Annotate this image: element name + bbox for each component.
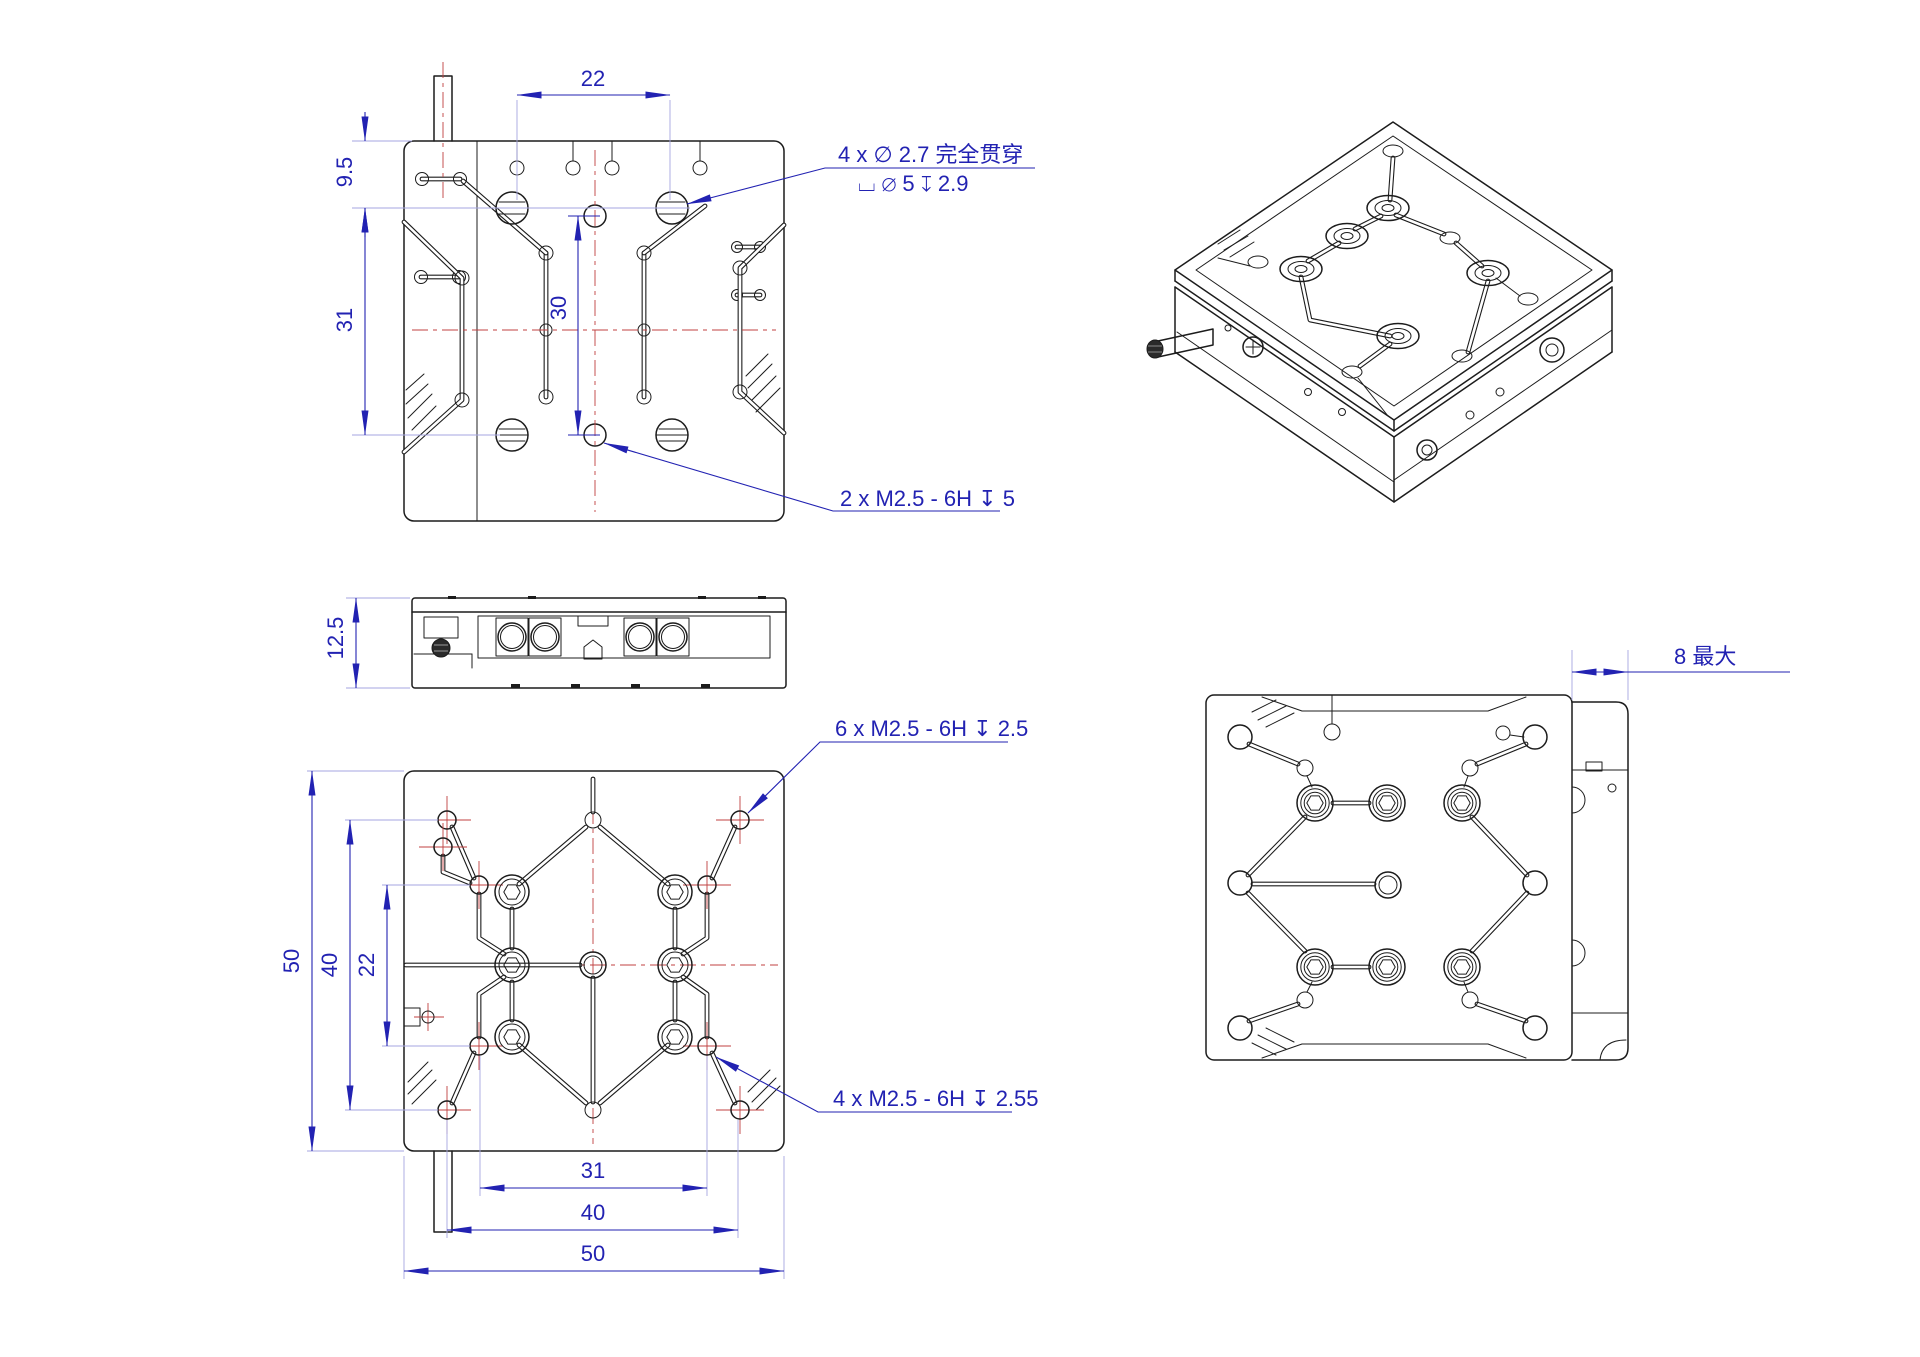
top-view-flexures <box>404 173 784 453</box>
iso-top-flexures <box>1218 145 1538 416</box>
hatch-marks-left <box>406 374 436 430</box>
dim-22-horizontal: 22 <box>517 66 670 95</box>
tapped-hole-m25 <box>716 1086 764 1134</box>
dim-50-bottom: 50 <box>404 1241 784 1271</box>
cable-connector <box>1147 340 1163 358</box>
dim-31-bottom: 31 <box>480 1158 707 1188</box>
rear-view-flexures <box>1248 695 1527 1021</box>
dim-12-5-vertical: 12.5 <box>323 598 410 688</box>
tapped-hole-m25 <box>419 823 467 871</box>
leader-counterbore: 4 x ∅ 2.7 完全贯穿 ⌴ ∅ 5 ↧ 2.9 <box>687 142 1035 204</box>
socket-screw <box>658 1020 692 1054</box>
note-counterbore-line2: ⌴ ∅ 5 ↧ 2.9 <box>858 171 968 196</box>
rear-view-flange <box>1572 702 1628 1060</box>
side-counterbore <box>1540 338 1564 362</box>
piezo-actuators <box>496 618 689 656</box>
dim-40-left: 40 <box>317 820 350 1110</box>
engineering-drawing: 22 9.5 31 30 4 x ∅ 2.7 完全贯穿 ⌴ ∅ 5 ↧ 2.9 … <box>0 0 1920 1357</box>
dim-8-max: 8 最大 <box>1572 644 1790 700</box>
dim-label-22-left: 22 <box>354 953 379 977</box>
top-view-extension-lines <box>352 100 690 435</box>
dim-label-31-bottom: 31 <box>581 1158 605 1183</box>
socket-screw <box>1369 785 1405 821</box>
dim-label-12-5: 12.5 <box>323 617 348 660</box>
leader-thread-6x: 6 x M2.5 - 6H ↧ 2.5 <box>748 716 1028 813</box>
socket-screw <box>495 875 529 909</box>
dim-40-bottom: 40 <box>447 1200 738 1230</box>
dim-label-50-left: 50 <box>279 949 304 973</box>
dim-label-31: 31 <box>332 308 357 332</box>
dim-label-40-bottom: 40 <box>581 1200 605 1225</box>
socket-screw <box>495 1020 529 1054</box>
connector-block <box>424 617 458 638</box>
socket-screw <box>1297 785 1333 821</box>
note-thread-2x: 2 x M2.5 - 6H ↧ 5 <box>840 486 1015 511</box>
socket-screw <box>658 875 692 909</box>
bottom-view: 50 40 22 31 40 50 6 x M2.5 - 6H ↧ 2.5 4 <box>279 716 1039 1279</box>
note-counterbore-line1: 4 x ∅ 2.7 完全贯穿 <box>838 142 1023 167</box>
note-thread-4x: 4 x M2.5 - 6H ↧ 2.55 <box>833 1086 1039 1111</box>
socket-screw <box>1297 949 1333 985</box>
leader-thread-2x: 2 x M2.5 - 6H ↧ 5 <box>604 443 1015 511</box>
top-view-centerlines <box>412 62 776 512</box>
socket-screw <box>1369 949 1405 985</box>
side-view: 12.5 <box>323 596 786 688</box>
leader-thread-4x: 4 x M2.5 - 6H ↧ 2.55 <box>716 1057 1039 1112</box>
isometric-view <box>1147 122 1612 502</box>
dim-31-vertical: 31 <box>332 208 365 435</box>
top-view: 22 9.5 31 30 4 x ∅ 2.7 完全贯穿 ⌴ ∅ 5 ↧ 2.9 … <box>332 62 1035 521</box>
dim-label-9-5: 9.5 <box>332 157 357 188</box>
dim-30-vertical: 30 <box>546 216 600 435</box>
cable-stub-bottom <box>434 1151 452 1232</box>
dim-label-8-max: 8 最大 <box>1674 644 1736 669</box>
hatch-marks-bottom-right <box>748 1070 780 1110</box>
counterbore-hole <box>496 419 528 451</box>
hatch-marks-bottom-left <box>408 1062 436 1104</box>
dim-22-left: 22 <box>354 885 387 1046</box>
dim-label-50-bottom: 50 <box>581 1241 605 1266</box>
tapped-hole-m25 <box>716 796 764 844</box>
bottom-view-flexures <box>404 779 780 1110</box>
dim-label-30: 30 <box>546 296 571 320</box>
rear-view: 8 最大 <box>1206 644 1790 1060</box>
socket-screw <box>1444 949 1480 985</box>
dim-label-40-left: 40 <box>317 953 342 977</box>
cable-gland <box>432 639 450 657</box>
bottom-view-extension-lines <box>307 771 784 1279</box>
socket-screw <box>1444 785 1480 821</box>
top-view-holes <box>496 141 707 451</box>
counterbore-hole <box>656 419 688 451</box>
drawing-canvas: 22 9.5 31 30 4 x ∅ 2.7 完全贯穿 ⌴ ∅ 5 ↧ 2.9 … <box>0 0 1920 1357</box>
dim-label-22: 22 <box>581 66 605 91</box>
dim-9-5-vertical: 9.5 <box>332 112 365 237</box>
dim-50-left: 50 <box>279 771 312 1151</box>
note-thread-6x: 6 x M2.5 - 6H ↧ 2.5 <box>835 716 1028 741</box>
iso-cable <box>1147 329 1213 358</box>
